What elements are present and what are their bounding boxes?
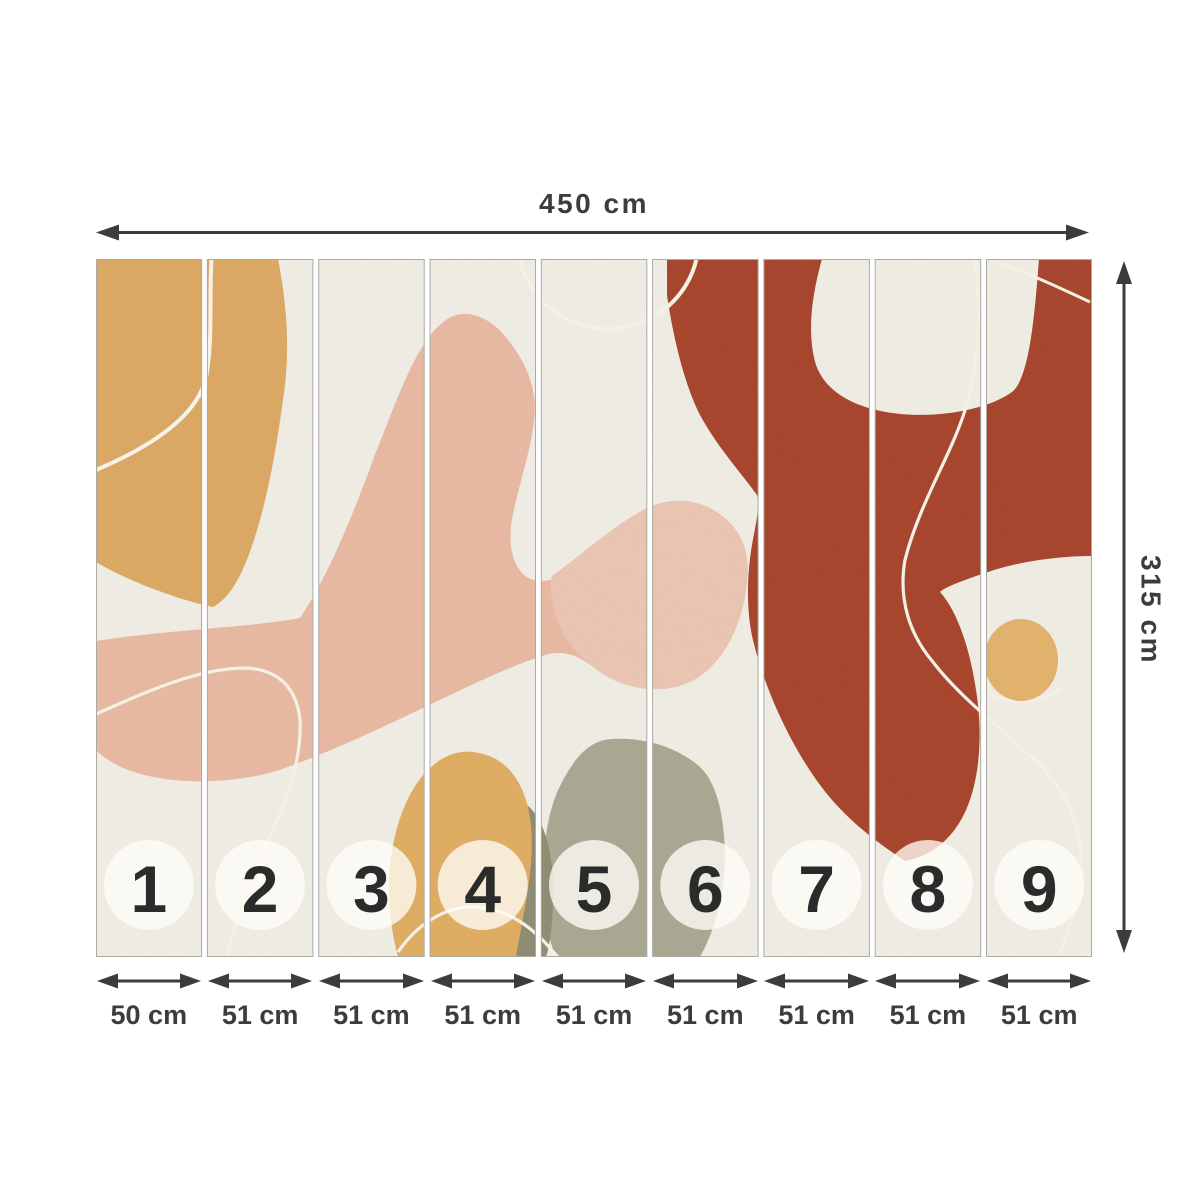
svg-text:2: 2 <box>242 852 279 926</box>
svg-text:51 cm: 51 cm <box>778 1000 855 1030</box>
svg-text:51 cm: 51 cm <box>1001 1000 1078 1030</box>
svg-text:51 cm: 51 cm <box>333 1000 410 1030</box>
svg-text:8: 8 <box>910 852 947 926</box>
svg-text:51 cm: 51 cm <box>556 1000 633 1030</box>
svg-text:4: 4 <box>464 852 501 926</box>
svg-text:315 cm: 315 cm <box>1136 555 1167 665</box>
svg-text:51 cm: 51 cm <box>444 1000 521 1030</box>
svg-text:51 cm: 51 cm <box>890 1000 967 1030</box>
svg-text:51 cm: 51 cm <box>667 1000 744 1030</box>
svg-text:6: 6 <box>687 852 724 926</box>
svg-text:9: 9 <box>1021 852 1058 926</box>
svg-text:7: 7 <box>798 852 835 926</box>
svg-text:450 cm: 450 cm <box>539 188 649 219</box>
svg-text:51 cm: 51 cm <box>222 1000 299 1030</box>
svg-text:5: 5 <box>576 852 613 926</box>
svg-text:3: 3 <box>353 852 390 926</box>
svg-text:1: 1 <box>130 852 167 926</box>
svg-text:50 cm: 50 cm <box>111 1000 188 1030</box>
